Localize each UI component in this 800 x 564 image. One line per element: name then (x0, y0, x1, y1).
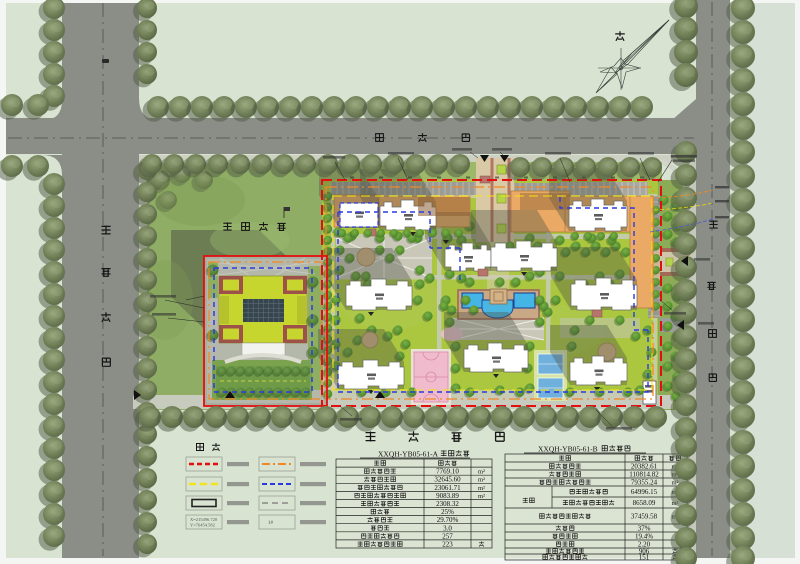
svg-text:223: 223 (442, 541, 453, 549)
svg-text:8658.09: 8658.09 (633, 499, 656, 507)
svg-text:64996.15: 64996.15 (631, 488, 658, 496)
svg-text:151: 151 (639, 554, 650, 562)
svg-text:29.70%: 29.70% (437, 516, 459, 524)
svg-text:79355.24: 79355.24 (631, 479, 658, 487)
svg-text:m²: m² (478, 469, 485, 476)
svg-text:m²: m² (478, 477, 485, 484)
svg-text:257: 257 (442, 532, 453, 540)
svg-text:XXQH-YB05-61-A: XXQH-YB05-61-A (378, 450, 439, 459)
svg-text:Y=76454.582: Y=76454.582 (190, 523, 215, 528)
svg-text:XXQH-YB05-61-B: XXQH-YB05-61-B (538, 445, 598, 454)
svg-text:2308.32: 2308.32 (436, 500, 459, 508)
svg-text:23061.71: 23061.71 (434, 484, 461, 492)
svg-text:9083.89: 9083.89 (436, 492, 459, 500)
svg-text:m²: m² (478, 493, 485, 500)
svg-text:1#: 1# (268, 521, 274, 526)
svg-text:m²: m² (478, 485, 485, 492)
svg-text:19.4%: 19.4% (635, 533, 653, 541)
svg-text:3.0: 3.0 (443, 524, 452, 532)
svg-text:37459.58: 37459.58 (631, 513, 658, 521)
svg-text:37%: 37% (638, 525, 651, 533)
svg-text:X=215496.720: X=215496.720 (190, 517, 218, 522)
svg-text:7769.10: 7769.10 (436, 468, 459, 476)
svg-text:25%: 25% (441, 508, 454, 516)
svg-text:110814.82: 110814.82 (629, 471, 659, 479)
svg-text:20382.61: 20382.61 (631, 463, 658, 471)
svg-text:32645.60: 32645.60 (434, 476, 461, 484)
